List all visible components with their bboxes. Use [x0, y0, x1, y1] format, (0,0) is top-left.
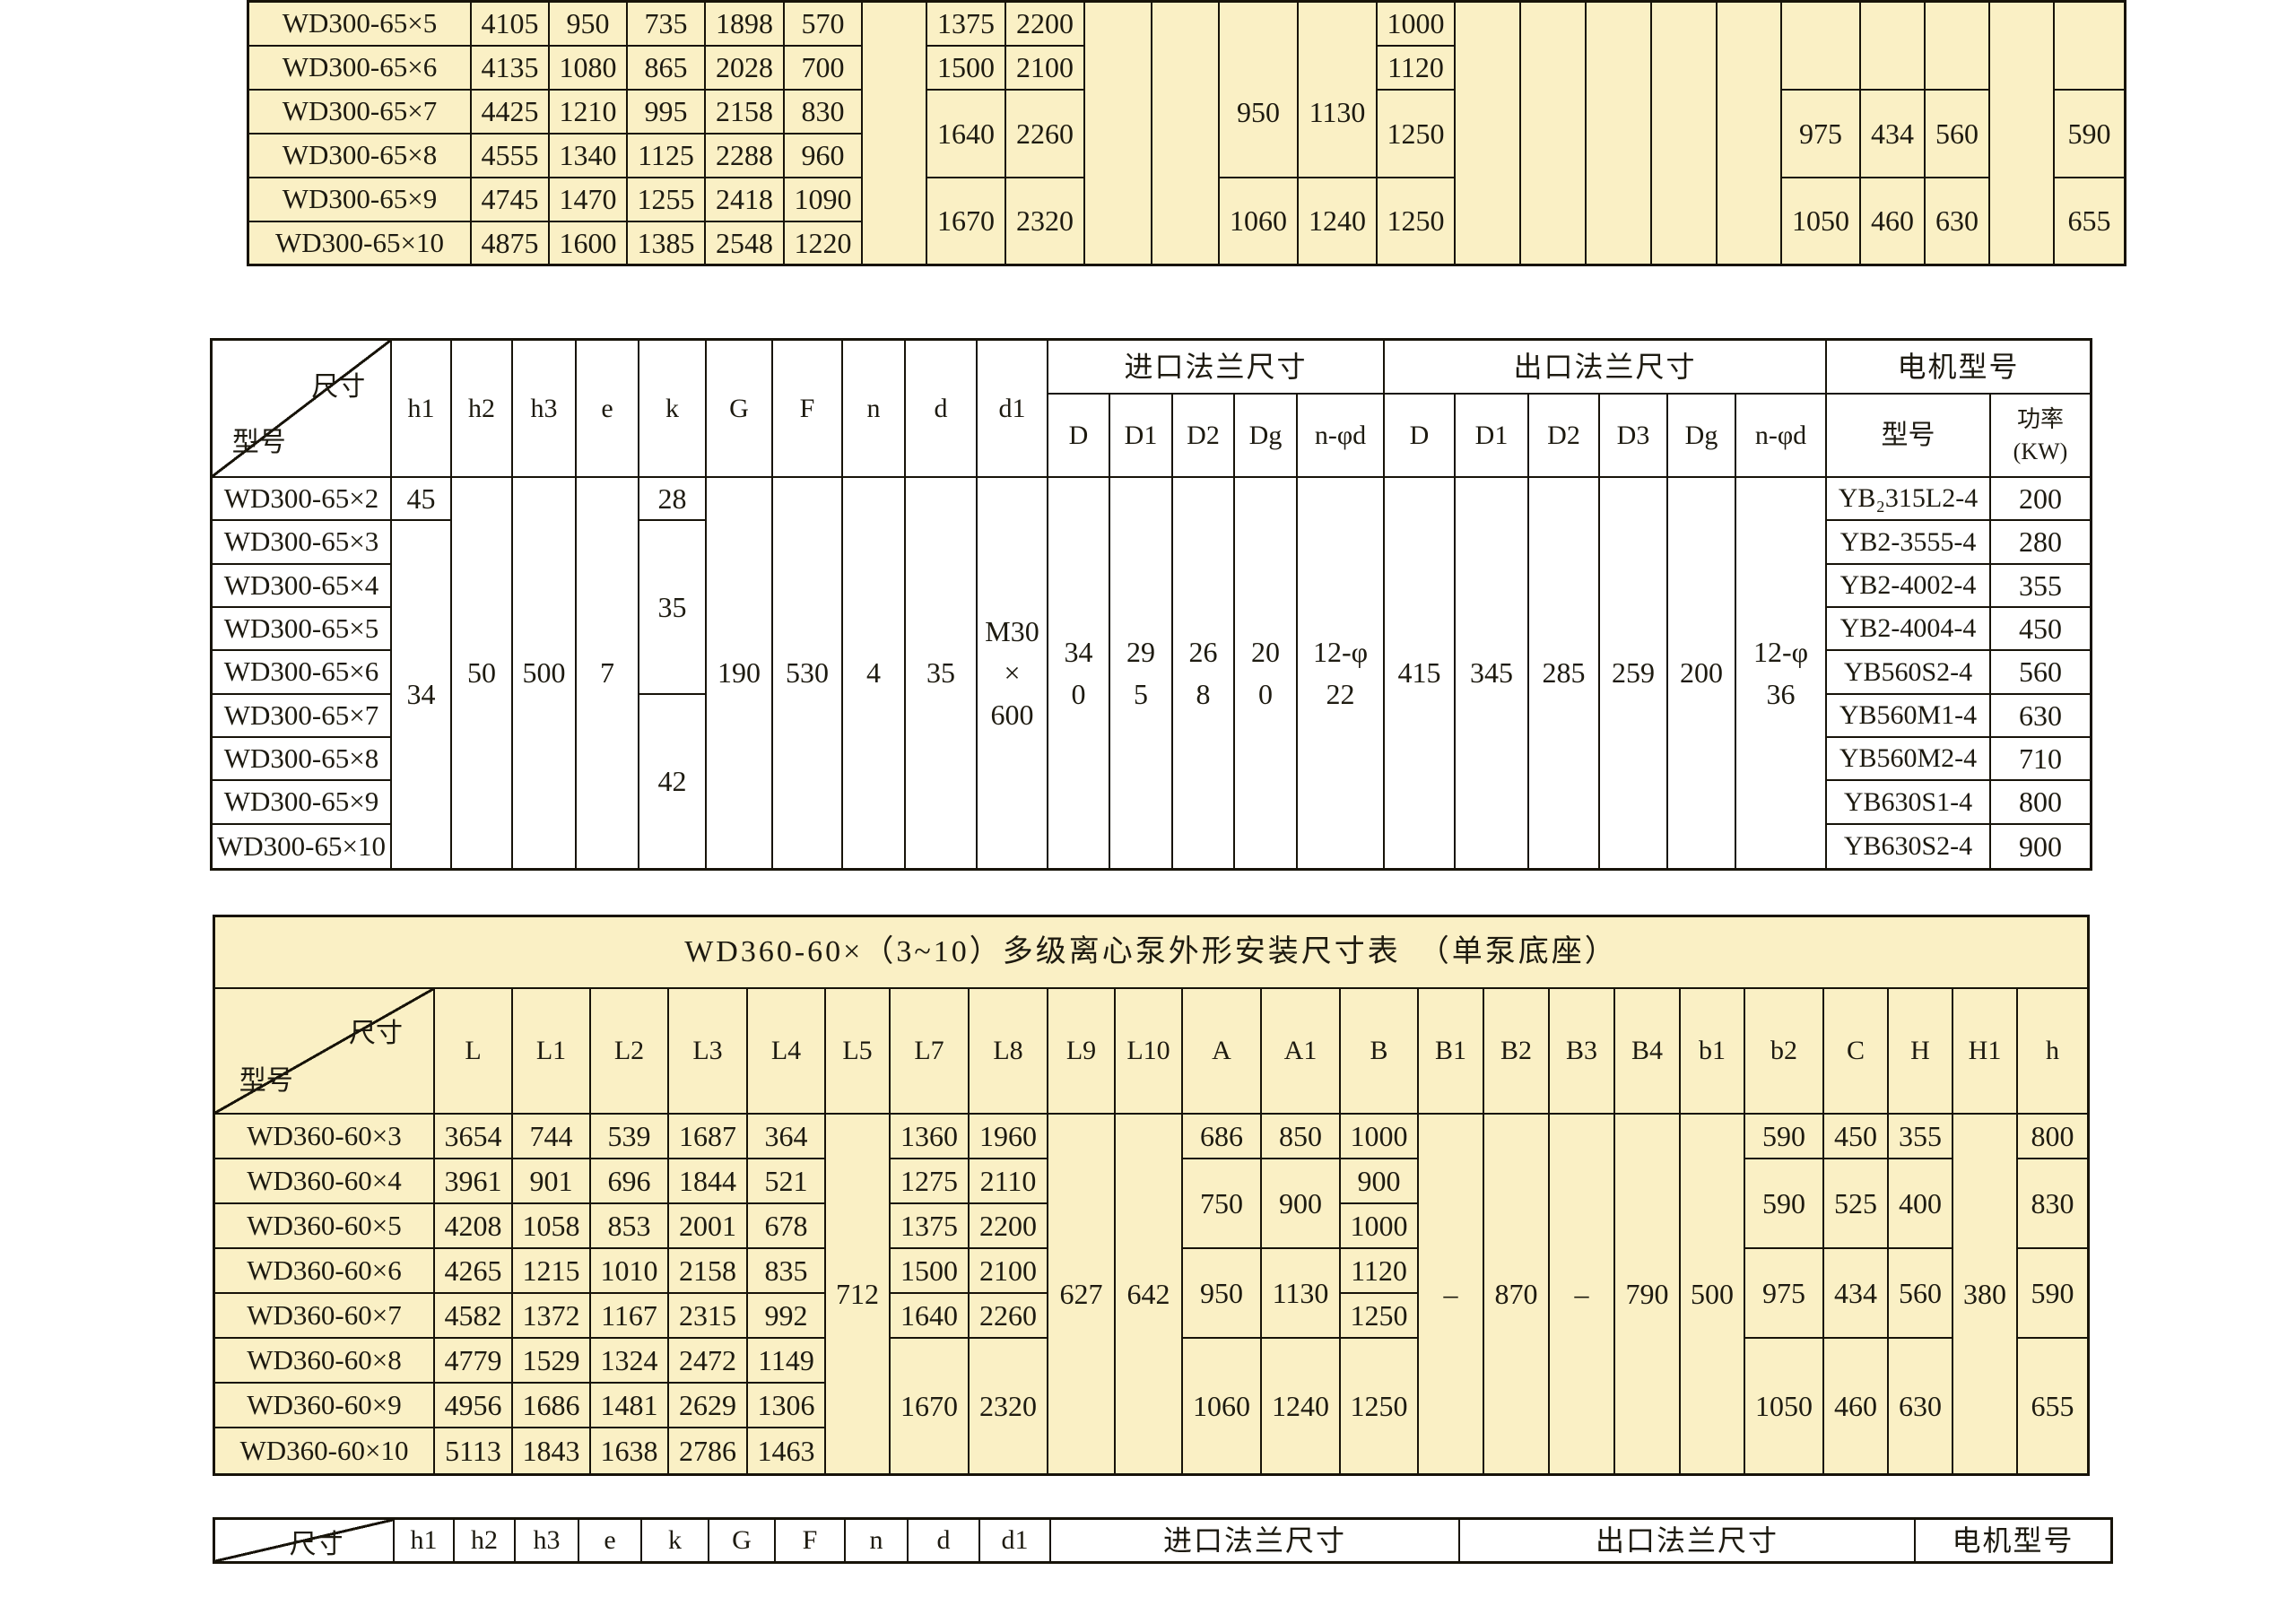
column-header-cell: F [773, 341, 843, 478]
column-header-cell: L4 [748, 989, 826, 1115]
value-cell: 642 [1116, 1115, 1183, 1473]
value-cell: 28 [639, 478, 707, 521]
model-cell: WD360-60×3 [215, 1115, 435, 1159]
value-cell: 2320 [1006, 178, 1085, 264]
value-cell: 12-φ 22 [1298, 478, 1385, 868]
value-cell: 2100 [1006, 47, 1085, 91]
column-header-cell: d1 [980, 1520, 1051, 1561]
model-cell: WD300-65×5 [213, 608, 392, 651]
column-header-cell: 电机型号 [1827, 341, 2090, 395]
column-header-cell: L8 [970, 989, 1048, 1115]
column-header-cell: L [435, 989, 513, 1115]
value-cell: 4135 [472, 47, 550, 91]
value-cell: 1375 [891, 1204, 970, 1249]
value-cell: 1250 [1378, 91, 1456, 178]
model-cell: WD300-65×3 [213, 521, 392, 565]
value-cell: 4956 [435, 1384, 513, 1428]
value-cell: 1640 [927, 91, 1006, 178]
value-cell: 4779 [435, 1339, 513, 1384]
column-header-cell: G [707, 341, 773, 478]
value-cell [1652, 3, 1718, 264]
value-cell: 7 [577, 478, 639, 868]
value-cell: 630 [1926, 178, 1990, 264]
column-header-cell: n [846, 1520, 909, 1561]
value-cell: 345 [1456, 478, 1529, 868]
value-cell: 590 [1745, 1159, 1824, 1249]
value-cell: 45 [392, 478, 452, 521]
column-header-cell: C [1824, 989, 1889, 1115]
column-header-cell: L5 [826, 989, 891, 1115]
value-cell: 1463 [748, 1428, 826, 1473]
value-cell: YB2-4004-4 [1827, 608, 1991, 651]
value-cell: 900 [1341, 1159, 1419, 1204]
value-cell: YB560M2-4 [1827, 738, 1991, 781]
value-cell: 900 [1262, 1159, 1341, 1249]
value-cell: 995 [628, 91, 706, 135]
value-cell: 500 [513, 478, 577, 868]
model-cell: WD360-60×9 [215, 1384, 435, 1428]
column-header-cell: D2 [1529, 395, 1600, 478]
column-header-cell: G [709, 1520, 776, 1561]
value-cell: 992 [748, 1294, 826, 1339]
value-cell: 590 [1745, 1115, 1824, 1159]
value-cell: 34 [392, 521, 452, 868]
value-cell: 850 [1262, 1115, 1341, 1159]
value-cell: 434 [1861, 91, 1926, 178]
value-cell: 1130 [1299, 3, 1378, 178]
value-cell: 450 [1824, 1115, 1889, 1159]
value-cell: 630 [1991, 695, 2090, 738]
value-cell: 686 [1183, 1115, 1262, 1159]
value-cell: – [1419, 1115, 1484, 1473]
value-cell: 678 [748, 1204, 826, 1249]
column-header-cell: h [2018, 989, 2087, 1115]
value-cell [863, 3, 927, 264]
value-cell: 1324 [591, 1339, 669, 1384]
value-cell: 4208 [435, 1204, 513, 1249]
model-cell: WD300-65×7 [249, 91, 472, 135]
value-cell: 570 [785, 3, 863, 47]
corner-model-label: 型号 [239, 1062, 293, 1101]
value-cell: 1130 [1262, 1249, 1341, 1339]
value-cell [1718, 3, 1782, 264]
corner-header-cell: 尺寸型号 [213, 341, 392, 478]
value-cell: YB560M1-4 [1827, 695, 1991, 738]
column-header-cell: d [909, 1520, 980, 1561]
value-cell: 590 [2055, 91, 2124, 178]
corner-dimension-label: 尺寸 [311, 368, 365, 407]
value-cell: 2028 [706, 47, 785, 91]
value-cell: 1000 [1378, 3, 1456, 47]
value-cell: 853 [591, 1204, 669, 1249]
value-cell: 2418 [706, 178, 785, 222]
value-cell: 521 [748, 1159, 826, 1204]
value-cell: 950 [1183, 1249, 1262, 1339]
value-cell: 4265 [435, 1249, 513, 1294]
value-cell: 460 [1861, 178, 1926, 264]
value-cell: 975 [1782, 91, 1861, 178]
column-header-cell: h3 [516, 1520, 579, 1561]
value-cell: 1640 [891, 1294, 970, 1339]
value-cell: 2548 [706, 222, 785, 264]
column-header-cell: n [843, 341, 906, 478]
value-cell [1085, 3, 1152, 264]
value-cell: 2315 [669, 1294, 748, 1339]
value-cell: 29 5 [1110, 478, 1173, 868]
value-cell: 1060 [1220, 178, 1299, 264]
model-cell: WD300-65×2 [213, 478, 392, 521]
value-cell: 865 [628, 47, 706, 91]
value-cell: YB2-4002-4 [1827, 565, 1991, 608]
value-cell: 1050 [1782, 178, 1861, 264]
value-cell: 4745 [472, 178, 550, 222]
value-cell: 3654 [435, 1115, 513, 1159]
column-header-cell: D1 [1456, 395, 1529, 478]
value-cell: 1529 [513, 1339, 591, 1384]
value-cell [1152, 3, 1220, 264]
value-cell: 415 [1385, 478, 1456, 868]
column-header-cell: D2 [1173, 395, 1235, 478]
value-cell [2055, 3, 2124, 91]
value-cell: 1960 [970, 1115, 1048, 1159]
value-cell: 950 [550, 3, 628, 47]
value-cell: 12-φ 36 [1736, 478, 1827, 868]
value-cell: 5113 [435, 1428, 513, 1473]
column-header-cell: L3 [669, 989, 748, 1115]
value-cell: YB560S2-4 [1827, 651, 1991, 695]
column-header-cell: 出口法兰尺寸 [1460, 1520, 1916, 1561]
column-header-cell: L1 [513, 989, 591, 1115]
value-cell: 2260 [970, 1294, 1048, 1339]
column-header-cell: 出口法兰尺寸 [1385, 341, 1827, 395]
column-header-cell: D [1048, 395, 1110, 478]
value-cell: 630 [1889, 1339, 1953, 1473]
value-cell: 1600 [550, 222, 628, 264]
value-cell: 2158 [669, 1249, 748, 1294]
value-cell: 4555 [472, 135, 550, 178]
column-header-cell: k [639, 341, 707, 478]
wd360-60-outline-dimensions-table: WD360-60×（3~10）多级离心泵外形安装尺寸表 （单泵底座）尺寸型号LL… [213, 915, 2090, 1476]
value-cell: 1687 [669, 1115, 748, 1159]
column-header-cell: A1 [1262, 989, 1341, 1115]
value-cell: 1360 [891, 1115, 970, 1159]
value-cell: 1220 [785, 222, 863, 264]
value-cell: 1250 [1341, 1339, 1419, 1473]
value-cell: 1060 [1183, 1339, 1262, 1473]
column-header-cell: h2 [452, 341, 513, 478]
column-header-cell: B3 [1550, 989, 1615, 1115]
value-cell: 696 [591, 1159, 669, 1204]
value-cell: 1250 [1341, 1294, 1419, 1339]
value-cell: 400 [1889, 1159, 1953, 1249]
value-cell: 功率 (KW) [1991, 395, 2090, 478]
value-cell: 710 [1991, 738, 2090, 781]
value-cell: 34 0 [1048, 478, 1110, 868]
value-cell: 4875 [472, 222, 550, 264]
value-cell: 1385 [628, 222, 706, 264]
value-cell: 712 [826, 1115, 891, 1473]
value-cell: 2110 [970, 1159, 1048, 1204]
value-cell: 500 [1681, 1115, 1745, 1473]
model-cell: WD300-65×6 [249, 47, 472, 91]
value-cell: 364 [748, 1115, 826, 1159]
column-header-cell: L7 [891, 989, 970, 1115]
value-cell: 655 [2018, 1339, 2087, 1473]
value-cell: 2158 [706, 91, 785, 135]
value-cell: – [1550, 1115, 1615, 1473]
model-cell: WD300-65×10 [249, 222, 472, 264]
column-header-cell: L9 [1048, 989, 1116, 1115]
value-cell [1456, 3, 1521, 264]
value-cell: 870 [1484, 1115, 1550, 1473]
value-cell: 590 [2018, 1249, 2087, 1339]
model-cell: WD300-65×6 [213, 651, 392, 695]
value-cell: 26 8 [1173, 478, 1235, 868]
model-cell: WD360-60×6 [215, 1249, 435, 1294]
model-cell: WD360-60×10 [215, 1428, 435, 1473]
column-header-cell: H [1889, 989, 1953, 1115]
value-cell [1926, 3, 1990, 91]
column-header-cell: h1 [395, 1520, 455, 1561]
value-cell [1990, 3, 2055, 264]
column-header-cell: d [906, 341, 978, 478]
model-cell: WD360-60×8 [215, 1339, 435, 1384]
value-cell: 380 [1953, 1115, 2018, 1473]
value-cell: 1375 [927, 3, 1006, 47]
value-cell: 2200 [1006, 3, 1085, 47]
value-cell: 50 [452, 478, 513, 868]
value-cell: 1340 [550, 135, 628, 178]
value-cell: 2260 [1006, 91, 1085, 178]
corner-header-cell: 尺寸型号 [215, 989, 435, 1115]
value-cell: 750 [1183, 1159, 1262, 1249]
value-cell: 2786 [669, 1428, 748, 1473]
value-cell: 835 [748, 1249, 826, 1294]
value-cell: YB630S2-4 [1827, 825, 1991, 868]
value-cell: YB2-3555-4 [1827, 521, 1991, 565]
value-cell: 20 0 [1235, 478, 1298, 868]
model-cell: WD300-65×8 [213, 738, 392, 781]
value-cell: 1000 [1341, 1204, 1419, 1249]
value-cell: 1149 [748, 1339, 826, 1384]
value-cell: 1010 [591, 1249, 669, 1294]
value-cell: 1058 [513, 1204, 591, 1249]
column-header-cell: D3 [1600, 395, 1668, 478]
corner-model-label: 型号 [232, 423, 286, 463]
table-title: WD360-60×（3~10）多级离心泵外形安装尺寸表 （单泵底座） [215, 917, 2087, 989]
model-cell: WD300-65×9 [213, 781, 392, 825]
value-cell: 1372 [513, 1294, 591, 1339]
model-cell: WD360-60×5 [215, 1204, 435, 1249]
value-cell [1587, 3, 1652, 264]
value-cell: 1686 [513, 1384, 591, 1428]
value-cell: 3961 [435, 1159, 513, 1204]
value-cell: 4582 [435, 1294, 513, 1339]
model-cell: WD300-65×8 [249, 135, 472, 178]
column-header-cell: B1 [1419, 989, 1484, 1115]
value-cell: 450 [1991, 608, 2090, 651]
value-cell: 1306 [748, 1384, 826, 1428]
model-cell: WD300-65×5 [249, 3, 472, 47]
value-cell: 190 [707, 478, 773, 868]
column-header-cell: k [642, 1520, 709, 1561]
value-cell: 1050 [1745, 1339, 1824, 1473]
value-cell: 1240 [1262, 1339, 1341, 1473]
value-cell: 1638 [591, 1428, 669, 1473]
value-cell: 735 [628, 3, 706, 47]
value-cell: 1670 [927, 178, 1006, 264]
value-cell: 1898 [706, 3, 785, 47]
value-cell: 530 [773, 478, 843, 868]
value-cell: 830 [785, 91, 863, 135]
column-header-cell: L2 [591, 989, 669, 1115]
value-cell: 2472 [669, 1339, 748, 1384]
value-cell: 525 [1824, 1159, 1889, 1249]
value-cell: 42 [639, 695, 707, 868]
value-cell: 1500 [927, 47, 1006, 91]
column-header-cell: 进口法兰尺寸 [1048, 341, 1385, 395]
value-cell: 1000 [1341, 1115, 1419, 1159]
corner-dimension-label: 尺寸 [349, 1014, 403, 1054]
column-header-cell: e [577, 341, 639, 478]
value-cell: 1670 [891, 1339, 970, 1473]
value-cell: 1167 [591, 1294, 669, 1339]
value-cell: 2200 [970, 1204, 1048, 1249]
value-cell: 4 [843, 478, 906, 868]
wd300-65-outline-dimensions-table-top-cropped: WD300-65×5WD300-65×6WD300-65×7WD300-65×8… [247, 0, 2126, 266]
corner-dimension-label: 尺寸 [290, 1525, 344, 1561]
column-header-cell: b2 [1745, 989, 1824, 1115]
column-header-cell: Dg [1235, 395, 1298, 478]
column-header-cell: H1 [1953, 989, 2018, 1115]
wd300-65-mount-flange-motor-table: 尺寸型号h1h2h3ekGFndd1进口法兰尺寸出口法兰尺寸电机型号DD1D2D… [210, 338, 2092, 871]
value-cell: 1500 [891, 1249, 970, 1294]
model-cell: WD300-65×7 [213, 695, 392, 738]
column-header-cell: 进口法兰尺寸 [1051, 1520, 1460, 1561]
value-cell: 830 [2018, 1159, 2087, 1249]
value-cell: 200 [1668, 478, 1736, 868]
column-header-cell: B [1341, 989, 1419, 1115]
column-header-cell: Dg [1668, 395, 1736, 478]
model-cell: WD360-60×4 [215, 1159, 435, 1204]
value-cell: 1120 [1378, 47, 1456, 91]
value-cell: 560 [1991, 651, 2090, 695]
value-cell: 1844 [669, 1159, 748, 1204]
value-cell: 1240 [1299, 178, 1378, 264]
value-cell: YB₂315L2-4 [1827, 478, 1991, 521]
value-cell: 2629 [669, 1384, 748, 1428]
value-cell: 280 [1991, 521, 2090, 565]
value-cell: 1470 [550, 178, 628, 222]
flange-motor-table-header-bottom-cropped: 尺寸h1h2h3ekGFndd1进口法兰尺寸出口法兰尺寸电机型号 [213, 1517, 2113, 1564]
column-header-cell: b1 [1681, 989, 1745, 1115]
scanned-pump-dimension-sheet: WD300-65×5WD300-65×6WD300-65×7WD300-65×8… [0, 0, 2296, 1623]
column-header-cell: e [579, 1520, 642, 1561]
value-cell: 950 [1220, 3, 1299, 178]
column-header-cell: F [776, 1520, 846, 1561]
value-cell: 1125 [628, 135, 706, 178]
value-cell: 960 [785, 135, 863, 178]
value-cell: YB630S1-4 [1827, 781, 1991, 825]
value-cell [1782, 3, 1861, 91]
column-header-cell: h1 [392, 341, 452, 478]
value-cell: 1255 [628, 178, 706, 222]
model-cell: WD300-65×10 [213, 825, 392, 868]
value-cell: 975 [1745, 1249, 1824, 1339]
column-header-cell: D [1385, 395, 1456, 478]
value-cell: 627 [1048, 1115, 1116, 1473]
column-header-cell: 电机型号 [1916, 1520, 2110, 1561]
model-cell: WD300-65×4 [213, 565, 392, 608]
model-cell: WD300-65×9 [249, 178, 472, 222]
value-cell: 655 [2055, 178, 2124, 264]
value-cell: 560 [1889, 1249, 1953, 1339]
column-header-cell: D1 [1110, 395, 1173, 478]
value-cell: 700 [785, 47, 863, 91]
value-cell: 1481 [591, 1384, 669, 1428]
value-cell: 355 [1889, 1115, 1953, 1159]
value-cell: 1250 [1378, 178, 1456, 264]
column-header-cell: B2 [1484, 989, 1550, 1115]
corner-header-cell: 尺寸 [215, 1520, 395, 1561]
value-cell: 901 [513, 1159, 591, 1204]
column-header-cell: h3 [513, 341, 577, 478]
value-cell: 2320 [970, 1339, 1048, 1473]
value-cell: 434 [1824, 1249, 1889, 1339]
value-cell: 285 [1529, 478, 1600, 868]
value-cell: 1843 [513, 1428, 591, 1473]
value-cell: 539 [591, 1115, 669, 1159]
value-cell: 744 [513, 1115, 591, 1159]
column-header-cell: d1 [978, 341, 1048, 478]
column-header-cell: n-φd [1736, 395, 1827, 478]
value-cell: 2001 [669, 1204, 748, 1249]
value-cell: 1120 [1341, 1249, 1419, 1294]
value-cell: 800 [1991, 781, 2090, 825]
value-cell: 2288 [706, 135, 785, 178]
value-cell: 790 [1615, 1115, 1681, 1473]
value-cell: 1275 [891, 1159, 970, 1204]
value-cell: 355 [1991, 565, 2090, 608]
column-header-cell: n-φd [1298, 395, 1385, 478]
value-cell: 1215 [513, 1249, 591, 1294]
value-cell: M30 × 600 [978, 478, 1048, 868]
value-cell: 900 [1991, 825, 2090, 868]
value-cell: 800 [2018, 1115, 2087, 1159]
value-cell: 4425 [472, 91, 550, 135]
column-header-cell: h2 [455, 1520, 516, 1561]
value-cell: 460 [1824, 1339, 1889, 1473]
column-header-cell: 型号 [1827, 395, 1991, 478]
value-cell: 200 [1991, 478, 2090, 521]
value-cell: 560 [1926, 91, 1990, 178]
value-cell: 2100 [970, 1249, 1048, 1294]
value-cell: 1080 [550, 47, 628, 91]
value-cell: 259 [1600, 478, 1668, 868]
value-cell: 4105 [472, 3, 550, 47]
value-cell [1521, 3, 1587, 264]
value-cell: 35 [639, 521, 707, 695]
value-cell: 1210 [550, 91, 628, 135]
column-header-cell: A [1183, 989, 1262, 1115]
column-header-cell: B4 [1615, 989, 1681, 1115]
value-cell [1861, 3, 1926, 91]
value-cell: 1090 [785, 178, 863, 222]
column-header-cell: L10 [1116, 989, 1183, 1115]
model-cell: WD360-60×7 [215, 1294, 435, 1339]
value-cell: 35 [906, 478, 978, 868]
